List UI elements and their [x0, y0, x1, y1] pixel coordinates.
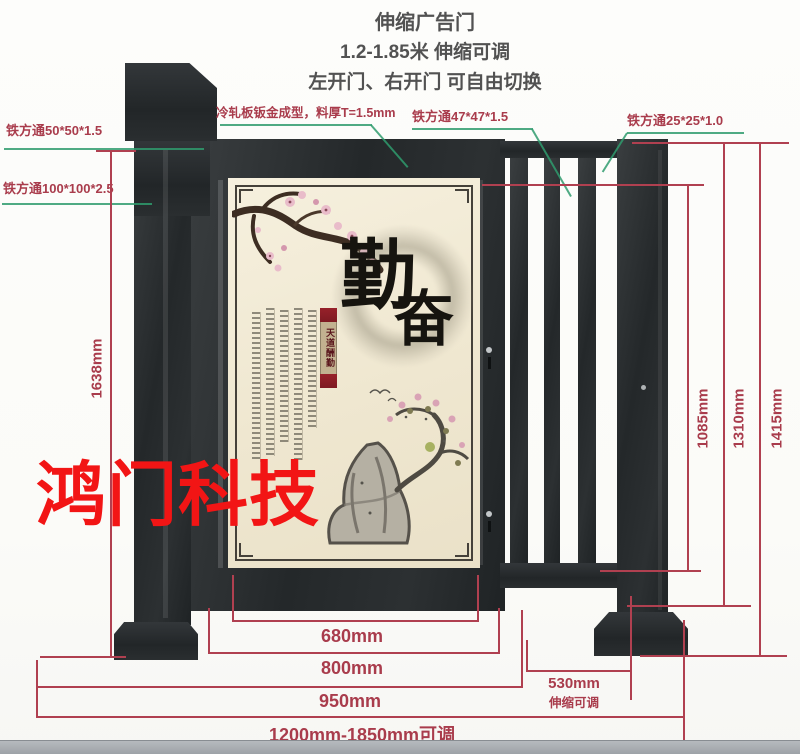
- leader-line: [2, 203, 152, 205]
- product-annotation-image: 伸缩广告门 1.2-1.85米 伸缩可调 左开门、右开门 可自由切换: [0, 0, 800, 754]
- dim-line-1085: [687, 184, 689, 571]
- reflection-streak: [480, 180, 483, 565]
- callout-tube47: 铁方通47*47*1.5: [412, 106, 508, 125]
- dim-text-530: 530mm: [524, 675, 624, 692]
- telescopic-bar: [510, 158, 528, 563]
- dim-ext: [526, 640, 528, 672]
- dim-tick: [482, 184, 704, 186]
- dim-line-680: [232, 620, 479, 622]
- right-post-bolt: [641, 385, 646, 390]
- leaf-accent: [425, 442, 435, 452]
- dim-text-950: 950mm: [300, 691, 400, 712]
- dim-line-1638: [110, 150, 112, 657]
- telescopic-bar: [544, 158, 560, 563]
- dim-ext: [36, 660, 38, 717]
- dim-tick: [600, 570, 701, 572]
- left-post-base: [114, 622, 198, 660]
- dim-ext: [521, 610, 523, 687]
- ribbon-text: 天道酬勤: [320, 322, 337, 374]
- hinge-dot: [486, 511, 492, 517]
- lock-dot: [486, 347, 492, 353]
- dim-tick: [40, 656, 126, 658]
- dim-line-1415: [759, 142, 761, 656]
- corner-ornament-icon: [239, 543, 253, 557]
- product-title: 伸缩广告门: [230, 8, 620, 38]
- watermark-text: 鸿门科技: [36, 460, 320, 530]
- dim-tick: [96, 150, 136, 152]
- dim-tick: [627, 605, 751, 607]
- corner-ornament-icon: [455, 189, 469, 203]
- dim-ext: [208, 608, 210, 653]
- callout-tube25: 铁方通25*25*1.0: [627, 110, 723, 129]
- product-note: 左开门、右开门 可自由切换: [230, 68, 620, 98]
- dim-line-1310: [723, 142, 725, 606]
- leader-line: [412, 128, 533, 130]
- dim-ext: [498, 608, 500, 653]
- header-text: 伸缩广告门 1.2-1.85米 伸缩可调 左开门、右开门 可自由切换: [230, 8, 620, 98]
- calligraphy-fen: 奋: [394, 290, 454, 350]
- motor-housing: [125, 63, 217, 141]
- poem-column: [266, 308, 275, 456]
- leader-line: [220, 124, 372, 126]
- dim-line-530: [526, 670, 632, 672]
- dim-ext: [630, 596, 632, 700]
- dim-line-800: [208, 652, 500, 654]
- dim-text-680: 680mm: [302, 626, 402, 647]
- ribbon-seal: 天道酬勤: [320, 308, 337, 388]
- dim-text-1415: 1415mm: [769, 387, 786, 451]
- dim-ext: [232, 575, 234, 621]
- poem-column: [280, 310, 289, 442]
- dim-text-1085: 1085mm: [695, 387, 712, 451]
- dim-line-total: [36, 716, 685, 718]
- right-post-base: [594, 612, 688, 656]
- dim-ext: [683, 620, 685, 742]
- leader-line: [627, 132, 744, 134]
- ground-strip: [0, 740, 800, 754]
- reflection-streak: [163, 150, 168, 618]
- product-subtitle: 1.2-1.85米 伸缩可调: [230, 38, 620, 68]
- dim-text-530-note: 伸缩可调: [524, 692, 624, 711]
- reflection-streak: [658, 150, 662, 610]
- dim-tick: [640, 655, 787, 657]
- lock-slot: [488, 357, 491, 369]
- dim-text-1310: 1310mm: [731, 387, 748, 451]
- hinge-slot: [488, 521, 491, 532]
- dim-ext: [477, 575, 479, 621]
- telescopic-bar: [578, 158, 596, 563]
- dim-tick: [632, 142, 789, 144]
- dim-text-800: 800mm: [302, 658, 402, 679]
- dim-text-1638: 1638mm: [89, 337, 106, 401]
- callout-panel-sheet: 冷轧板钣金成型，料厚T=1.5mm: [216, 102, 396, 121]
- ribbon-cap-top: [320, 308, 337, 322]
- rock-bonsai-art: [310, 383, 475, 563]
- dim-line-950: [36, 686, 523, 688]
- poem-column: [294, 308, 303, 460]
- callout-tube50: 铁方通50*50*1.5: [6, 120, 102, 139]
- poem-column: [252, 312, 261, 462]
- callout-tube100: 铁方通100*100*2.5: [3, 178, 114, 197]
